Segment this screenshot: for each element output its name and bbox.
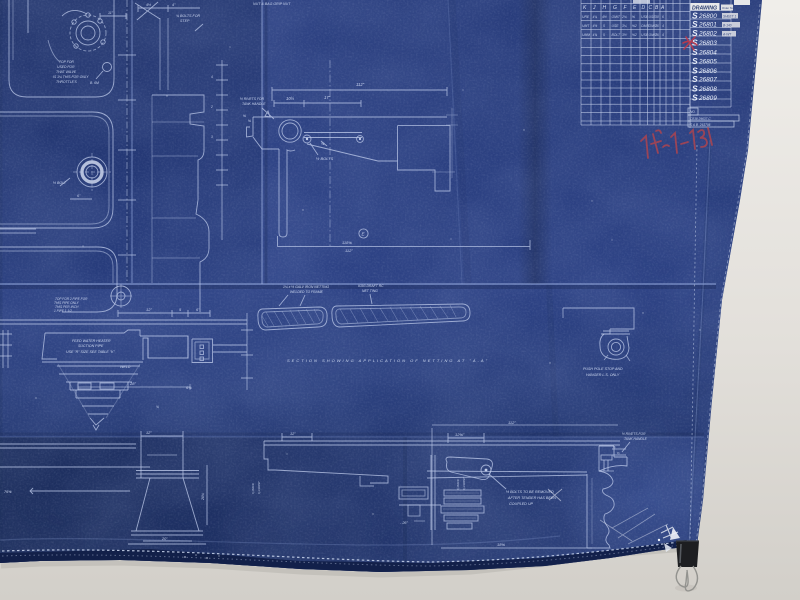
svg-text:IS 1¼ THIS FOR ONLY: IS 1¼ THIS FOR ONLY — [53, 75, 89, 79]
svg-text:20": 20" — [161, 537, 168, 541]
svg-text:BOLT: BOLT — [612, 33, 622, 37]
svg-text:6⅜: 6⅜ — [186, 385, 192, 390]
svg-text:NET TING: NET TING — [362, 289, 378, 293]
svg-text:SHEET 1: SHEET 1 — [723, 15, 737, 19]
svg-text:¾ BOLTS FOR: ¾ BOLTS FOR — [176, 14, 201, 18]
svg-text:USE "R" SIZE SEE TABLE "K": USE "R" SIZE SEE TABLE "K" — [66, 350, 115, 354]
svg-text:10½: 10½ — [286, 96, 295, 101]
svg-text:URE: URE — [582, 15, 590, 19]
svg-text:COUPLED UP: COUPLED UP — [509, 502, 534, 506]
svg-text:TANK HANDLE: TANK HANDLE — [242, 102, 266, 106]
svg-text:H: H — [603, 5, 607, 11]
svg-text:76⅝: 76⅝ — [4, 490, 12, 494]
svg-text:26801: 26801 — [698, 22, 717, 29]
svg-text:TANK HANDLE: TANK HANDLE — [624, 437, 648, 441]
svg-text:112": 112" — [356, 82, 365, 87]
svg-text:S A.B. 263706: S A.B. 263706 — [690, 123, 711, 127]
svg-text:11": 11" — [108, 11, 114, 15]
svg-text:26809: 26809 — [698, 95, 717, 102]
svg-text:⅜ BACK: ⅜ BACK — [251, 483, 255, 494]
svg-text:STEP: STEP — [180, 19, 190, 23]
svg-text:USE: USE — [612, 24, 620, 28]
svg-text:1¼ x ½ GALV IRON NETTING: 1¼ x ½ GALV IRON NETTING — [283, 285, 330, 289]
svg-text:4: 4 — [662, 24, 664, 28]
svg-text:⅜ FRONT: ⅜ FRONT — [257, 481, 261, 494]
svg-text:½ BOLTS TO BE REMOVED: ½ BOLTS TO BE REMOVED — [506, 490, 554, 494]
svg-text:A: A — [660, 5, 665, 11]
svg-text:HANGER L.S. ONLY: HANGER L.S. ONLY — [586, 373, 620, 377]
svg-text:4¾: 4¾ — [593, 33, 598, 37]
svg-text:⅝: ⅝ — [632, 15, 635, 19]
svg-text:½ RIVETS FOR: ½ RIVETS FOR — [240, 97, 265, 101]
svg-text:USED FOR: USED FOR — [57, 65, 75, 69]
svg-text:C838 29637-C: C838 29637-C — [690, 117, 711, 121]
svg-text:S: S — [692, 56, 698, 66]
svg-text:3½: 3½ — [622, 33, 627, 37]
svg-text:4½: 4½ — [593, 24, 598, 28]
svg-text:WELDED TO FRAME: WELDED TO FRAME — [290, 290, 324, 294]
svg-text:⅜2: ⅜2 — [632, 33, 637, 37]
svg-text:½ RIVETS FOR: ½ RIVETS FOR — [622, 432, 646, 436]
svg-text:SUCTION PIPE: SUCTION PIPE — [78, 344, 104, 348]
svg-text:⅜ FRONT: ⅜ FRONT — [462, 477, 466, 490]
svg-text:26800: 26800 — [698, 13, 717, 20]
svg-text:THROTTLE'S: THROTTLE'S — [56, 80, 78, 84]
svg-text:2: 2 — [210, 105, 213, 109]
svg-text:B. 6M: B. 6M — [90, 81, 99, 85]
svg-text:½ BOLT: ½ BOLT — [53, 181, 67, 185]
svg-text:12": 12" — [290, 432, 296, 436]
svg-text:5: 5 — [603, 24, 605, 28]
svg-text:A-WT: A-WT — [722, 33, 732, 37]
svg-text:UMT: UMT — [582, 24, 590, 28]
svg-text:1 PIPE 1 1/2: 1 PIPE 1 1/2 — [54, 309, 72, 313]
svg-text:12⅜": 12⅜" — [455, 432, 465, 437]
svg-text:4¼: 4¼ — [593, 15, 598, 19]
svg-text:G: G — [613, 5, 617, 11]
svg-text:½ BOLTS: ½ BOLTS — [316, 156, 334, 161]
svg-text:26802: 26802 — [698, 31, 717, 38]
svg-text:FEED WATER HEATER: FEED WATER HEATER — [72, 339, 111, 343]
svg-text:PUSH POLE STOP AND: PUSH POLE STOP AND — [583, 367, 623, 371]
svg-text:⅜2: ⅜2 — [632, 24, 637, 28]
svg-text:3¼: 3¼ — [622, 24, 627, 28]
svg-text:⅜ BACK: ⅜ BACK — [456, 479, 460, 490]
svg-text:⅜: ⅜ — [243, 114, 246, 118]
svg-text:4: 4 — [662, 33, 664, 37]
svg-text:OMIT: OMIT — [612, 15, 621, 19]
svg-text:26806: 26806 — [698, 68, 717, 75]
svg-text:118⅛: 118⅛ — [342, 240, 352, 245]
svg-text:26804: 26804 — [698, 50, 717, 57]
svg-text:5: 5 — [603, 33, 605, 37]
svg-text:D: D — [642, 5, 646, 11]
svg-text:S: S — [692, 93, 698, 103]
svg-text:¾: ¾ — [156, 405, 159, 409]
svg-text:Order No: Order No — [722, 6, 734, 10]
svg-text:4: 4 — [211, 75, 213, 79]
svg-text:THAT VALVE: THAT VALVE — [56, 70, 77, 74]
svg-text:26807: 26807 — [698, 77, 717, 84]
svg-text:4½: 4½ — [602, 15, 607, 19]
svg-text:UMM: UMM — [582, 33, 590, 37]
svg-text:⅛: ⅛ — [248, 119, 251, 123]
svg-text:26805: 26805 — [698, 59, 717, 66]
svg-text:30: 30 — [655, 15, 659, 19]
svg-text:28": 28" — [129, 381, 136, 386]
svg-text:36: 36 — [655, 33, 659, 37]
svg-text:12": 12" — [146, 307, 152, 312]
svg-text:NUT & BAG GRIP NUT: NUT & BAG GRIP NUT — [253, 2, 291, 6]
svg-text:3: 3 — [211, 135, 213, 139]
svg-text:112": 112" — [508, 420, 516, 425]
svg-text:AFTER TENDER HAS BEEN: AFTER TENDER HAS BEEN — [507, 496, 556, 500]
svg-text:NO.: NO. — [690, 110, 696, 114]
svg-text:S: S — [692, 74, 698, 84]
svg-text:6: 6 — [662, 15, 664, 19]
svg-text:18⅝: 18⅝ — [497, 542, 505, 547]
svg-text:26¾: 26¾ — [201, 493, 205, 501]
svg-text:TOP FOR: TOP FOR — [59, 60, 74, 64]
svg-text:12": 12" — [146, 431, 152, 435]
svg-text:J: J — [592, 5, 596, 11]
svg-text:2¾: 2¾ — [621, 15, 627, 19]
svg-text:26803: 26803 — [698, 40, 717, 47]
svg-text:6": 6" — [196, 307, 200, 312]
svg-text:4½: 4½ — [146, 3, 151, 7]
svg-text:C: C — [649, 5, 653, 11]
svg-text:36: 36 — [655, 24, 659, 28]
svg-text:B-140: B-140 — [723, 24, 732, 28]
svg-text:112": 112" — [345, 248, 353, 253]
svg-text:- 26": - 26" — [400, 521, 409, 525]
svg-text:26808: 26808 — [698, 86, 717, 93]
svg-text:#393 DRAFT RC: #393 DRAFT RC — [358, 284, 384, 288]
